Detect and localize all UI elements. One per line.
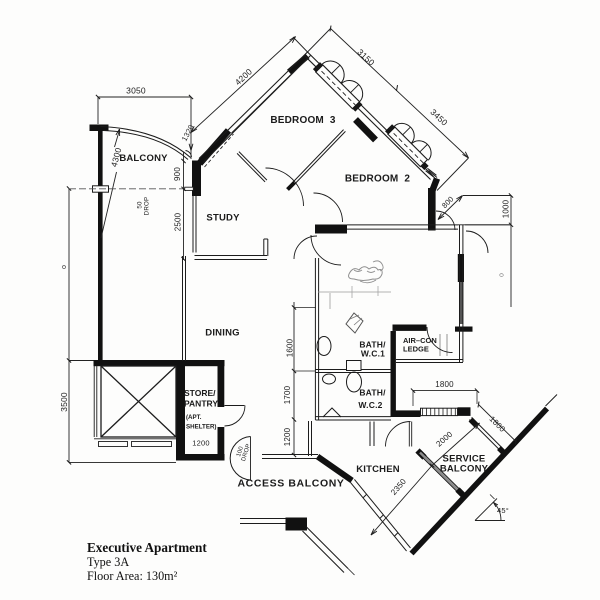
svg-text:o: o bbox=[61, 265, 68, 269]
svg-text:BEDROOM 2: BEDROOM 2 bbox=[345, 174, 411, 185]
svg-text:1700: 1700 bbox=[283, 385, 292, 404]
svg-text:Floor Area: 130m²: Floor Area: 130m² bbox=[87, 569, 178, 583]
svg-text:45°: 45° bbox=[497, 506, 509, 515]
svg-text:Executive Apartment: Executive Apartment bbox=[87, 540, 207, 555]
svg-text:STUDY: STUDY bbox=[206, 213, 240, 224]
svg-text:o: o bbox=[499, 273, 506, 277]
svg-text:(APT.: (APT. bbox=[186, 414, 202, 421]
svg-text:1200: 1200 bbox=[283, 427, 292, 446]
svg-text:900: 900 bbox=[173, 167, 182, 181]
svg-text:3050: 3050 bbox=[126, 86, 146, 96]
svg-text:PANTRY: PANTRY bbox=[184, 399, 218, 409]
svg-text:BALCONY: BALCONY bbox=[440, 464, 489, 475]
svg-text:1000: 1000 bbox=[502, 199, 511, 218]
svg-text:1200: 1200 bbox=[192, 439, 210, 448]
svg-text:ACCESS BALCONY: ACCESS BALCONY bbox=[238, 478, 345, 490]
svg-text:DINING: DINING bbox=[205, 328, 239, 339]
svg-text:LEDGE: LEDGE bbox=[403, 345, 429, 354]
svg-text:50: 50 bbox=[137, 201, 144, 209]
svg-text:2500: 2500 bbox=[174, 212, 183, 231]
svg-text:BEDROOM 3: BEDROOM 3 bbox=[270, 115, 336, 126]
svg-text:W.C.1: W.C.1 bbox=[361, 349, 385, 359]
svg-text:SHELTER): SHELTER) bbox=[186, 424, 216, 431]
svg-text:STORE/: STORE/ bbox=[184, 388, 216, 398]
svg-text:KITCHEN: KITCHEN bbox=[356, 464, 400, 475]
svg-text:1600: 1600 bbox=[286, 338, 295, 357]
svg-text:Type 3A: Type 3A bbox=[87, 555, 129, 569]
svg-text:3500: 3500 bbox=[59, 392, 69, 412]
svg-text:BATH/: BATH/ bbox=[359, 388, 386, 398]
svg-text:BALCONY: BALCONY bbox=[119, 153, 168, 164]
svg-text:W.C.2: W.C.2 bbox=[358, 400, 382, 410]
svg-text:1800: 1800 bbox=[435, 380, 454, 389]
svg-text:DROP: DROP bbox=[144, 197, 151, 216]
